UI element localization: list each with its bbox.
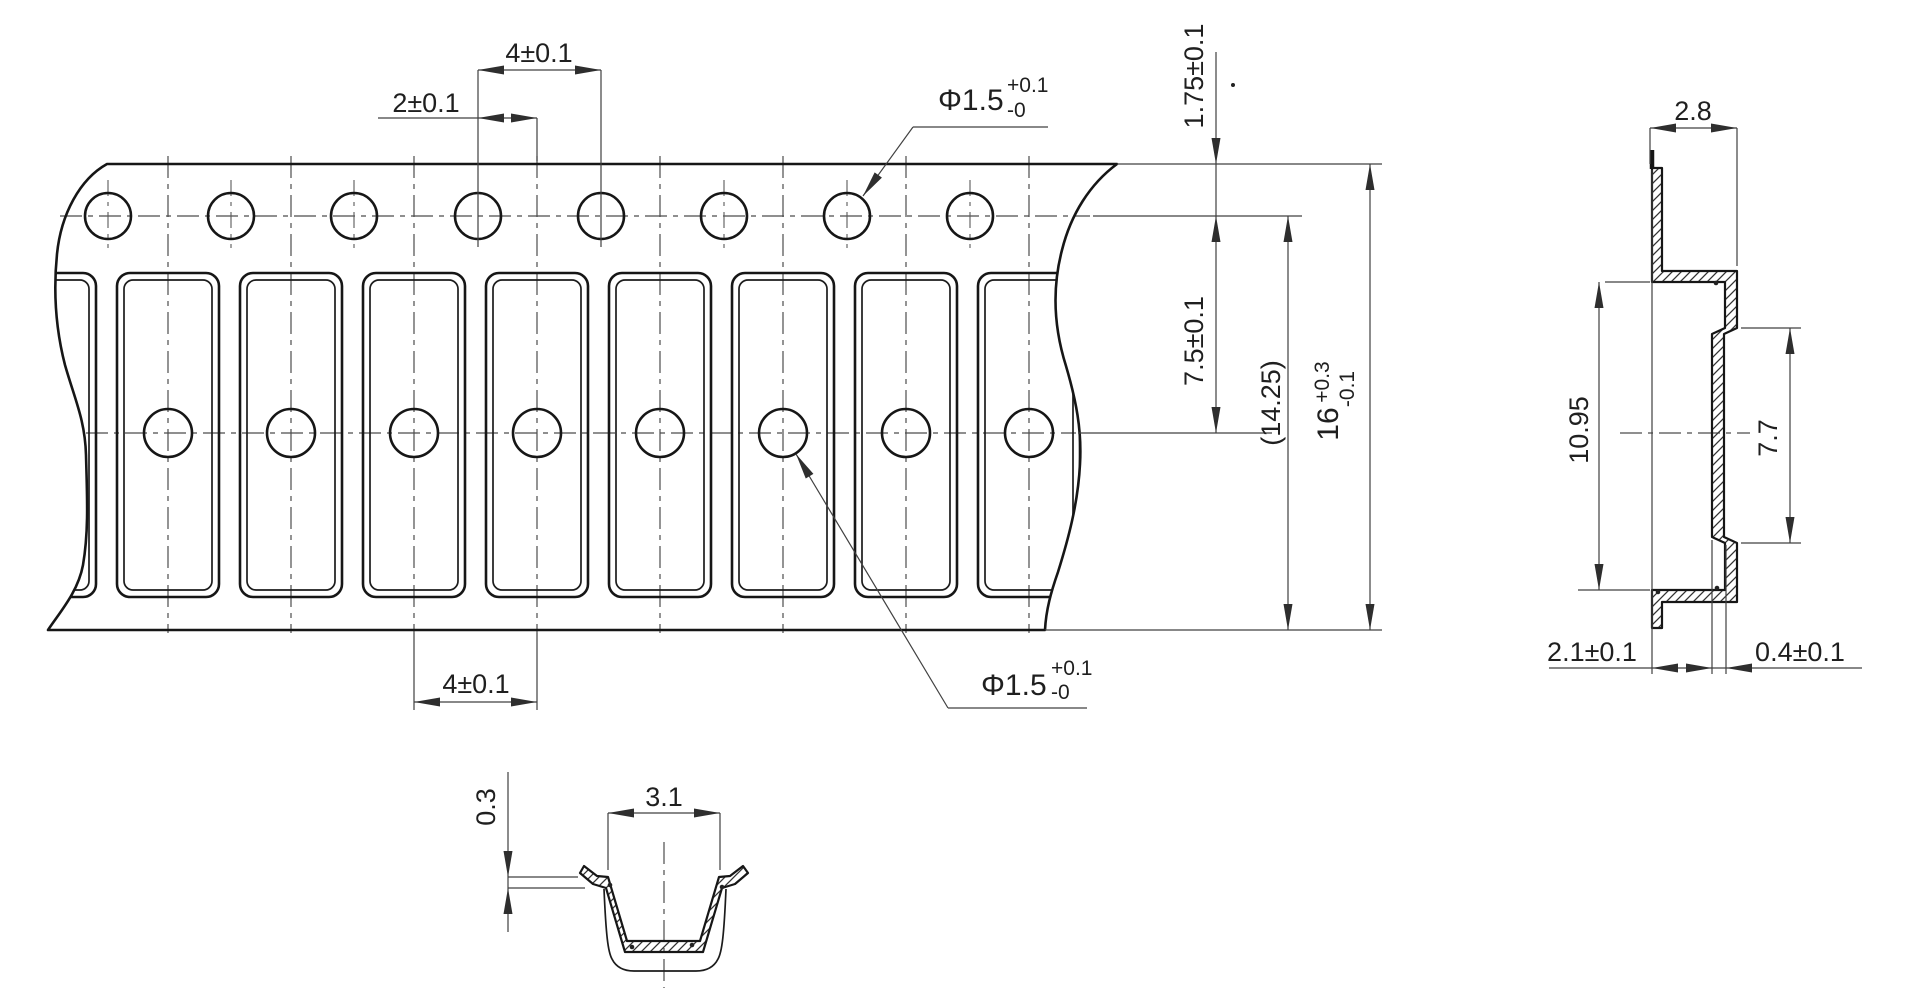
label-sprocket-hole-tol-plus: +0.1 [1007,74,1048,97]
tape-top-view: 4±0.1 2±0.1 Φ1.5 +0.1 -0 1.75±0.1 7.5±0.… [0,24,1382,710]
arrowhead [1686,664,1712,673]
dim-pocket-depth: 2.8 [1674,96,1712,126]
dim-pocket-outer-length: 10.95 [1564,396,1594,464]
arrowhead [1212,407,1221,433]
arrowhead [1212,138,1221,164]
arrowhead [1212,216,1221,242]
arrowhead [1595,282,1604,308]
arrowhead [1366,164,1375,190]
label-pocket-hole-tol-minus: -0 [1051,681,1070,704]
dim-pocket-mouth-width: 3.1 [645,782,683,812]
label-pocket-hole-dia: Φ1.5 [981,669,1047,702]
dim-tape-width-tol-plus: +0.3 [1311,361,1334,402]
pocket-inner [1,280,89,590]
dim-flange-thickness: 0.3 [471,788,501,826]
arrowhead [608,809,634,818]
dim-step-offset: 0.4±0.1 [1755,637,1845,667]
dim-edge-margin: 1.75±0.1 [1179,24,1209,129]
arrowhead [1711,124,1737,133]
arrowhead [478,66,504,75]
junction-dot [608,883,613,888]
arrowhead [1726,664,1752,673]
side-section-view: 2.8 10.95 7.7 2.1±0.1 0.4±0.1 [1547,96,1862,674]
junction-dot [720,885,725,890]
tape-dimensions [378,52,1382,710]
arrowhead [1650,124,1676,133]
arrowhead [1284,216,1293,242]
section-profile [1652,168,1737,628]
centerlines [60,156,1090,633]
arrowhead [575,66,601,75]
arrowhead [1652,664,1678,673]
junction-dot [1715,586,1720,591]
leader-line [796,454,948,708]
label-pocket-hole-tol-plus: +0.1 [1051,657,1092,680]
arrowhead [1284,604,1293,630]
carrier-tape-drawing: 4±0.1 2±0.1 Φ1.5 +0.1 -0 1.75±0.1 7.5±0.… [0,0,1914,990]
arrowhead [504,851,513,877]
dim-sprocket-offset: 2±0.1 [392,88,459,118]
arrowhead [792,452,813,479]
arrowhead [1786,517,1795,543]
dim-tape-width-tol-minus: -0.1 [1336,371,1359,407]
dim-pocket-pitch-top: 4±0.1 [505,38,572,68]
arrowhead [511,114,537,123]
dim-pocket-pitch-bottom: 4±0.1 [442,669,509,699]
arrowhead [511,698,537,707]
junction-dot [1714,281,1719,286]
arrowhead [478,114,504,123]
junction-dot [630,945,635,950]
arrowhead [1595,564,1604,590]
arrowhead [414,698,440,707]
end-section-view: 0.3 3.1 [471,772,748,988]
pocket-outer [0,273,96,597]
dim-ref-width: (14.25) [1256,360,1286,446]
label-sprocket-hole-tol-minus: -0 [1007,99,1026,122]
arrowhead [1366,604,1375,630]
arrowhead [694,809,720,818]
dim-hole-to-pocket-center: 7.5±0.1 [1179,296,1209,386]
junction-dot [690,943,695,948]
dim-tape-width: 16 [1312,407,1345,440]
junction-dot [1656,590,1661,595]
label-sprocket-hole-dia: Φ1.5 [938,84,1004,117]
arrowhead [1786,328,1795,354]
arrowhead [859,172,882,198]
dim-pocket-inner-length: 7.7 [1753,419,1783,457]
arrowhead [504,888,513,914]
pockets [0,273,1080,597]
pocket [0,273,96,597]
dim-step-depth: 2.1±0.1 [1547,637,1637,667]
speck [1231,83,1235,87]
